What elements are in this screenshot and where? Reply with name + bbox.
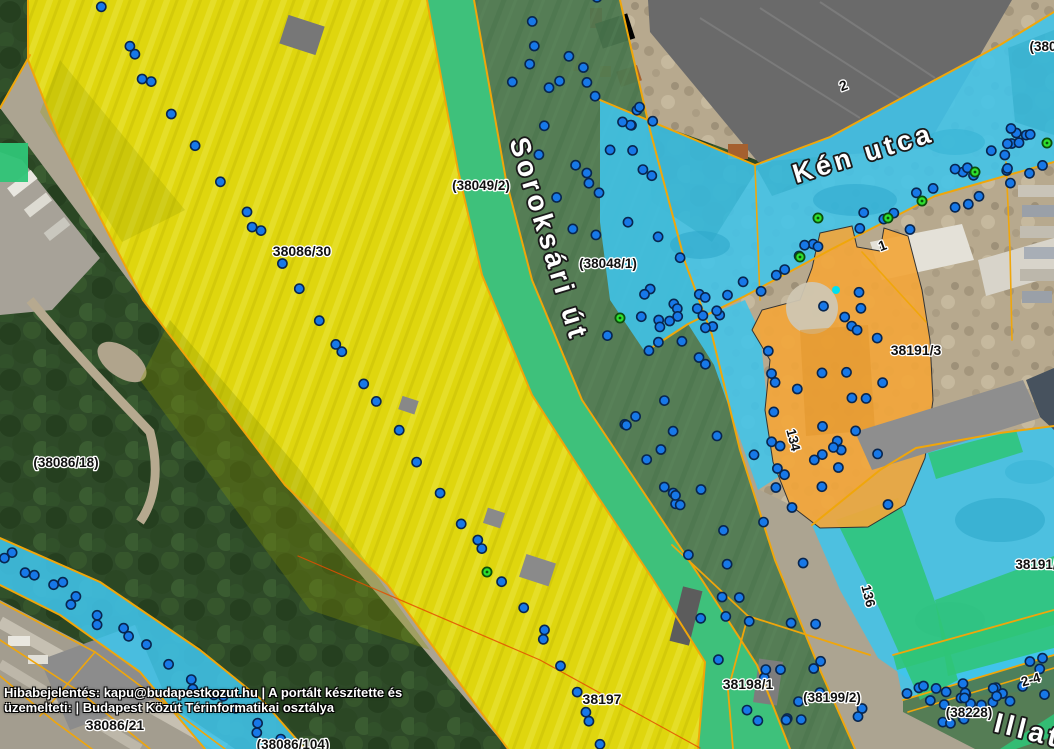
boundary-marker-dot[interactable] [773,464,782,473]
boundary-marker-dot[interactable] [958,679,967,688]
boundary-marker-dot[interactable] [1006,179,1015,188]
boundary-marker-dot[interactable] [58,578,67,587]
survey-marker-center [887,217,890,220]
boundary-marker-dot[interactable] [721,612,730,621]
boundary-marker-dot[interactable] [544,83,553,92]
attribution-footer: Hibabejelentés: kapu@budapestkozut.hu | … [4,686,402,715]
boundary-marker-dot[interactable] [671,491,680,500]
boundary-marker-dot[interactable] [623,218,632,227]
boundary-marker-dot[interactable] [584,717,593,726]
boundary-marker-dot[interactable] [767,437,776,446]
boundary-marker-dot[interactable] [295,284,304,293]
boundary-marker-dot[interactable] [256,226,265,235]
boundary-marker-dot[interactable] [648,117,657,126]
boundary-marker-dot[interactable] [809,664,818,673]
boundary-marker-dot[interactable] [859,208,868,217]
boundary-marker-dot[interactable] [130,50,139,59]
boundary-marker-dot[interactable] [252,728,261,737]
orange-inner-building [800,325,875,436]
boundary-marker-dot[interactable] [834,463,843,472]
parcel-number-label: (38048/1) [579,256,637,271]
boundary-marker-dot[interactable] [677,337,686,346]
boundary-marker-dot[interactable] [817,482,826,491]
boundary-marker-dot[interactable] [853,712,862,721]
boundary-marker-dot[interactable] [701,323,710,332]
trees-under-cyan [1005,460,1054,484]
boundary-marker-dot[interactable] [637,312,646,321]
boundary-marker-dot[interactable] [771,483,780,492]
parcel-number-label: 38086/21 [86,717,145,733]
map-canvas[interactable]: Soroksári útKén utcaIllato38086/30(38049… [0,0,1054,749]
boundary-marker-dot[interactable] [761,665,770,674]
boundary-marker-dot[interactable] [644,346,653,355]
boundary-marker-dot[interactable] [883,500,892,509]
boundary-marker-dot[interactable] [530,41,539,50]
boundary-marker-dot[interactable] [138,74,147,83]
trucks-right [1022,291,1052,303]
trucks-right [1022,205,1054,217]
boundary-marker-dot[interactable] [525,60,534,69]
boundary-marker-dot[interactable] [764,346,773,355]
boundary-marker-dot[interactable] [656,445,665,454]
boundary-marker-dot[interactable] [1038,161,1047,170]
boundary-marker-dot[interactable] [782,715,791,724]
boundary-marker-dot[interactable] [696,485,705,494]
boundary-marker-dot[interactable] [167,109,176,118]
boundary-marker-dot[interactable] [854,288,863,297]
parcel-number-label: (38199/2) [803,690,861,705]
boundary-marker-dot[interactable] [1026,130,1035,139]
boundary-marker-dot[interactable] [942,687,951,696]
boundary-marker-dot[interactable] [842,368,851,377]
boundary-marker-dot[interactable] [992,692,1001,701]
boundary-marker-dot[interactable] [873,449,882,458]
boundary-marker-dot[interactable] [1003,164,1012,173]
boundary-marker-dot[interactable] [573,688,582,697]
boundary-marker-dot[interactable] [539,635,548,644]
boundary-marker-dot[interactable] [960,693,969,702]
boundary-marker-dot[interactable] [642,455,651,464]
parcel-number-label: (380 [1029,39,1054,54]
boundary-marker-dot[interactable] [395,426,404,435]
boundary-marker-dot[interactable] [592,0,601,2]
boundary-marker-dot[interactable] [742,706,751,715]
parcel-number-label: (38086/104) [257,737,330,749]
boundary-marker-dot[interactable] [477,544,486,553]
building-sw [8,636,30,646]
boundary-marker-dot[interactable] [855,224,864,233]
boundary-marker-dot[interactable] [856,304,865,313]
zone-overlays-layer [0,0,1054,749]
boundary-marker-dot[interactable] [929,184,938,193]
boundary-marker-dot[interactable] [457,519,466,528]
boundary-marker-dot[interactable] [594,188,603,197]
boundary-marker-dot[interactable] [964,200,973,209]
boundary-marker-dot[interactable] [1005,697,1014,706]
boundary-marker-dot[interactable] [723,560,732,569]
boundary-marker-dot[interactable] [278,259,287,268]
boundary-marker-dot[interactable] [248,223,257,232]
survey-marker-aqua[interactable] [832,286,840,294]
boundary-marker-dot[interactable] [873,334,882,343]
boundary-marker-dot[interactable] [853,326,862,335]
boundary-marker-dot[interactable] [497,577,506,586]
survey-marker-center [619,317,622,320]
boundary-marker-dot[interactable] [912,188,921,197]
boundary-marker-dot[interactable] [813,242,822,251]
boundary-marker-dot[interactable] [676,253,685,262]
boundary-marker-dot[interactable] [622,421,631,430]
boundary-marker-dot[interactable] [693,304,702,313]
tank-notch [786,282,838,334]
attribution-line2: üzemelteti: | Budapest Közút Térinformat… [4,701,402,715]
boundary-marker-dot[interactable] [660,482,669,491]
parcel-number-label: 38191/3 [891,342,942,358]
boundary-marker-dot[interactable] [655,322,664,331]
survey-marker-center [799,256,802,259]
trucks-right [1024,247,1054,259]
boundary-marker-dot[interactable] [862,394,871,403]
boundary-marker-dot[interactable] [191,141,200,150]
boundary-marker-dot[interactable] [799,558,808,567]
parcel-number-label: (38049/2) [452,178,510,193]
boundary-marker-dot[interactable] [1025,169,1034,178]
boundary-marker-dot[interactable] [919,681,928,690]
boundary-marker-dot[interactable] [595,740,604,749]
boundary-marker-dot[interactable] [654,232,663,241]
boundary-marker-dot[interactable] [556,661,565,670]
boundary-marker-dot[interactable] [638,165,647,174]
boundary-marker-dot[interactable] [591,92,600,101]
boundary-marker-dot[interactable] [582,168,591,177]
boundary-marker-dot[interactable] [1025,657,1034,666]
boundary-marker-dot[interactable] [694,353,703,362]
boundary-marker-dot[interactable] [618,117,627,126]
survey-marker-center [921,200,924,203]
boundary-marker-dot[interactable] [555,77,564,86]
parcel-number-label: 38191/ [1015,557,1054,572]
boundary-marker-dot[interactable] [628,146,637,155]
boundary-marker-dot[interactable] [540,121,549,130]
trucks-right [1020,226,1054,238]
boundary-marker-dot[interactable] [147,77,156,86]
boundary-marker-dot[interactable] [142,640,151,649]
boundary-marker-dot[interactable] [932,684,941,693]
boundary-marker-dot[interactable] [718,592,727,601]
boundary-marker-dot[interactable] [242,207,251,216]
boundary-marker-dot[interactable] [315,316,324,325]
boundary-marker-dot[interactable] [164,660,173,669]
boundary-marker-dot[interactable] [519,603,528,612]
boundary-marker-dot[interactable] [797,715,806,724]
boundary-marker-dot[interactable] [568,224,577,233]
boundary-marker-dot[interactable] [1000,150,1009,159]
boundary-marker-dot[interactable] [759,518,768,527]
boundary-marker-dot[interactable] [187,675,196,684]
boundary-marker-dot[interactable] [905,225,914,234]
boundary-marker-dot[interactable] [372,397,381,406]
boundary-marker-dot[interactable] [676,500,685,509]
boundary-marker-dot[interactable] [640,290,649,299]
boundary-marker-dot[interactable] [253,719,262,728]
boundary-marker-dot[interactable] [800,241,809,250]
boundary-marker-dot[interactable] [771,378,780,387]
boundary-marker-dot[interactable] [673,312,682,321]
boundary-marker-dot[interactable] [987,146,996,155]
boundary-marker-dot[interactable] [603,331,612,340]
boundary-marker-dot[interactable] [878,378,887,387]
survey-marker-center [1046,142,1049,145]
boundary-marker-dot[interactable] [829,443,838,452]
boundary-marker-dot[interactable] [579,63,588,72]
boundary-marker-dot[interactable] [793,384,802,393]
boundary-marker-dot[interactable] [811,620,820,629]
boundary-marker-dot[interactable] [540,625,549,634]
boundary-marker-dot[interactable] [1014,138,1023,147]
boundary-marker-dot[interactable] [528,17,537,26]
boundary-marker-dot[interactable] [30,571,39,580]
boundary-marker-dot[interactable] [818,422,827,431]
boundary-marker-dot[interactable] [660,396,669,405]
boundary-marker-dot[interactable] [951,165,960,174]
boundary-marker-dot[interactable] [745,617,754,626]
parcel-number-label: (38228) [946,705,993,720]
survey-marker-center [817,217,820,220]
boundary-marker-dot[interactable] [701,293,710,302]
boundary-marker-dot[interactable] [787,503,796,512]
boundary-marker-dot[interactable] [584,179,593,188]
green-roof-building [0,143,28,182]
boundary-marker-dot[interactable] [216,177,225,186]
boundary-marker-dot[interactable] [412,458,421,467]
boundary-marker-dot[interactable] [739,277,748,286]
boundary-marker-dot[interactable] [926,696,935,705]
parcel-number-label: 38198/1 [723,676,774,692]
boundary-marker-dot[interactable] [847,393,856,402]
boundary-marker-dot[interactable] [974,192,983,201]
boundary-marker-dot[interactable] [1038,654,1047,663]
boundary-marker-dot[interactable] [735,593,744,602]
boundary-marker-dot[interactable] [684,550,693,559]
boundary-marker-dot[interactable] [66,600,75,609]
boundary-marker-dot[interactable] [564,52,573,61]
boundary-marker-dot[interactable] [757,287,766,296]
boundary-marker-dot[interactable] [331,340,340,349]
boundary-marker-dot[interactable] [696,614,705,623]
boundary-marker-dot[interactable] [93,611,102,620]
boundary-marker-dot[interactable] [780,265,789,274]
boundary-marker-dot[interactable] [946,719,955,728]
boundary-marker-dot[interactable] [606,145,615,154]
boundary-marker-dot[interactable] [97,2,106,11]
boundary-marker-dot[interactable] [772,271,781,280]
boundary-marker-dot[interactable] [767,369,776,378]
boundary-marker-dot[interactable] [93,620,102,629]
boundary-marker-dot[interactable] [840,312,849,321]
attribution-line1: Hibabejelentés: kapu@budapestkozut.hu | … [4,686,402,700]
boundary-marker-dot[interactable] [794,697,803,706]
boundary-marker-dot[interactable] [359,379,368,388]
boundary-marker-dot[interactable] [818,450,827,459]
survey-marker-center [486,571,489,574]
boundary-marker-dot[interactable] [8,548,17,557]
boundary-marker-dot[interactable] [851,426,860,435]
parcel-number-label: 38086/30 [273,243,332,259]
boundary-marker-dot[interactable] [647,171,656,180]
survey-marker-center [974,171,977,174]
boundary-marker-dot[interactable] [769,407,778,416]
trucks-right [1020,269,1054,281]
boundary-marker-dot[interactable] [49,580,58,589]
boundary-marker-dot[interactable] [654,338,663,347]
trees-under-cyan [955,498,1045,542]
boundary-marker-dot[interactable] [1003,139,1012,148]
boundary-marker-dot[interactable] [124,632,133,641]
boundary-marker-dot[interactable] [1040,690,1049,699]
boundary-marker-dot[interactable] [508,77,517,86]
boundary-marker-dot[interactable] [631,412,640,421]
boundary-marker-dot[interactable] [753,716,762,725]
boundary-marker-dot[interactable] [591,230,600,239]
boundary-marker-dot[interactable] [21,568,30,577]
boundary-marker-dot[interactable] [712,431,721,440]
boundary-marker-dot[interactable] [712,306,721,315]
boundary-marker-dot[interactable] [819,302,828,311]
boundary-marker-dot[interactable] [1006,124,1015,133]
trucks-right [1018,185,1054,197]
boundary-marker-dot[interactable] [635,103,644,112]
boundary-marker-dot[interactable] [902,689,911,698]
boundary-marker-dot[interactable] [776,665,785,674]
boundary-marker-dot[interactable] [817,368,826,377]
boundary-marker-dot[interactable] [787,618,796,627]
boundary-marker-dot[interactable] [816,657,825,666]
boundary-marker-dot[interactable] [714,655,723,664]
trees-under-cyan [813,184,897,216]
boundary-marker-dot[interactable] [473,535,482,544]
boundary-marker-dot[interactable] [571,161,580,170]
boundary-marker-dot[interactable] [581,708,590,717]
boundary-marker-dot[interactable] [719,526,728,535]
boundary-marker-dot[interactable] [749,450,758,459]
boundary-marker-dot[interactable] [723,291,732,300]
boundary-marker-dot[interactable] [436,489,445,498]
boundary-marker-dot[interactable] [582,78,591,87]
boundary-marker-dot[interactable] [951,203,960,212]
boundary-marker-dot[interactable] [669,427,678,436]
parcel-number-label: 38197 [583,691,622,707]
parcel-number-label: (38086/18) [33,455,98,470]
